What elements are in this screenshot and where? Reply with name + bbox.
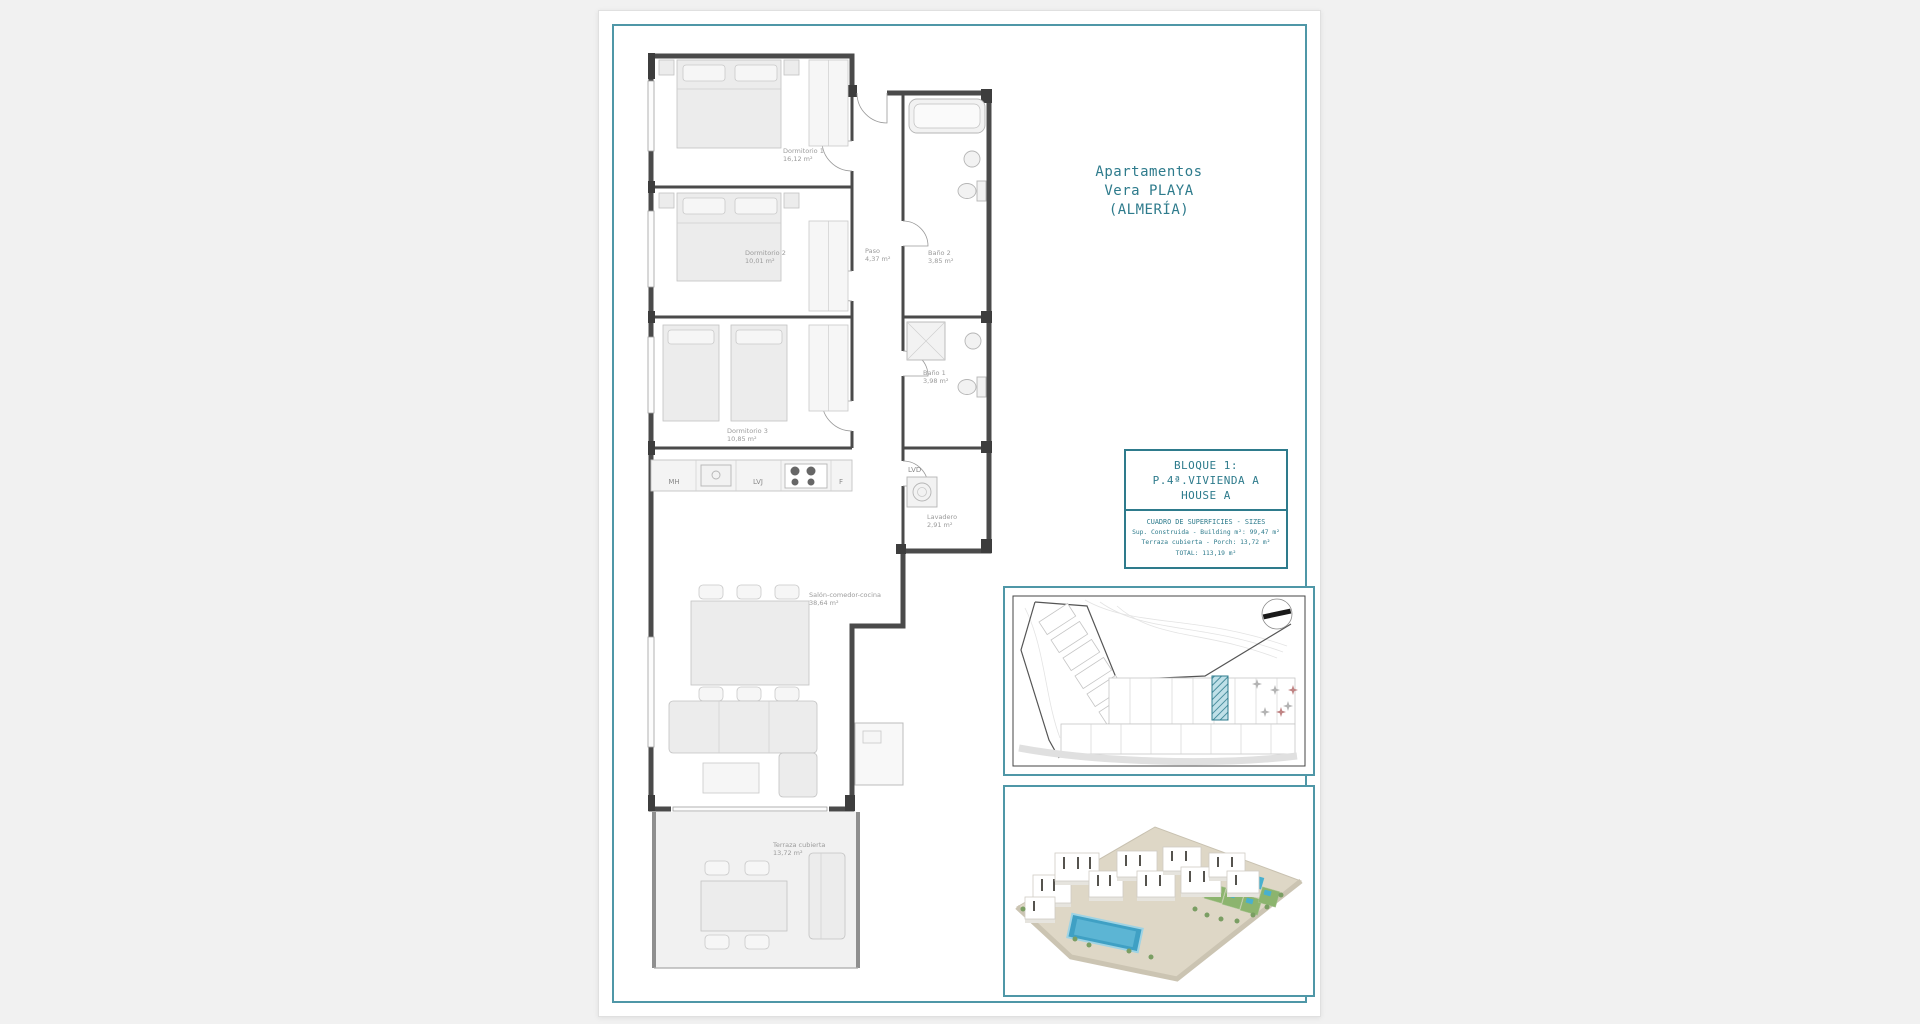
room-area-bano1: 3,98 m² (923, 377, 949, 385)
render-3d-inset (1003, 785, 1315, 997)
room-area-terraza: 13,72 m² (773, 849, 803, 857)
room-area-bano2: 3,85 m² (928, 257, 954, 265)
room-label-salon: Salón-comedor-cocina (809, 591, 881, 599)
site-plan-drawing (1005, 588, 1313, 774)
room-label-dormitorio1: Dormitorio 1 (783, 147, 824, 155)
site-plan-inset (1003, 586, 1315, 776)
floor-plan: Dormitorio 1 16,12 m² Dormitorio 2 10,01… (641, 41, 1011, 991)
room-area-dormitorio3: 10,85 m² (727, 435, 757, 443)
room-label-paso: Paso (865, 247, 880, 255)
room-area-dormitorio2: 10,01 m² (745, 257, 775, 265)
room-label-bano1: Baño 1 (923, 369, 946, 377)
room-label-lavadero: Lavadero (927, 513, 957, 521)
service-platform (855, 723, 903, 785)
room-label-dormitorio3: Dormitorio 3 (727, 427, 768, 435)
bedroom3-furniture (663, 325, 848, 421)
label-lvd: LVD (908, 466, 921, 474)
block-line-1: BLOQUE 1: (1128, 458, 1284, 473)
plan-sheet: Apartamentos Vera PLAYA (ALMERÍA) (598, 10, 1321, 1017)
room-area-lavadero: 2,91 m² (927, 521, 953, 529)
surfaces-table-title: CUADRO DE SUPERFICIES - SIZES (1128, 517, 1284, 528)
bathroom1-fixtures (907, 322, 986, 397)
north-arrow (1262, 599, 1292, 629)
terrace-sliding-door (671, 806, 829, 812)
sofa-set (669, 701, 817, 797)
room-area-dormitorio1: 16,12 m² (783, 155, 813, 163)
room-area-paso: 4,37 m² (865, 255, 891, 263)
project-title: Apartamentos Vera PLAYA (ALMERÍA) (1054, 163, 1244, 220)
surfaces-row-total: TOTAL: 113,19 m² (1128, 549, 1284, 560)
room-area-salon: 38,64 m² (809, 599, 839, 607)
kitchen-counter (651, 460, 852, 491)
label-lvj: LVJ (753, 478, 763, 486)
aerial-render (1005, 787, 1313, 995)
info-box: BLOQUE 1: P.4ª.VIVIENDA A HOUSE A CUADRO… (1124, 449, 1288, 569)
room-label-terraza: Terraza cubierta (772, 841, 825, 849)
highlighted-unit (1212, 676, 1228, 720)
bathroom2-fixtures (909, 99, 986, 201)
block-identifier: BLOQUE 1: P.4ª.VIVIENDA A HOUSE A (1126, 451, 1286, 511)
interior-doors (822, 141, 928, 486)
dining-set (691, 585, 809, 701)
surfaces-row-terrace: Terraza cubierta - Porch: 13,72 m² (1128, 538, 1284, 549)
surfaces-table: CUADRO DE SUPERFICIES - SIZES Sup. Const… (1126, 511, 1286, 567)
title-line-2: Vera PLAYA (1054, 182, 1244, 201)
room-label-bano2: Baño 2 (928, 249, 951, 257)
block-line-2: P.4ª.VIVIENDA A (1128, 473, 1284, 488)
label-f: F (839, 478, 843, 486)
room-label-dormitorio2: Dormitorio 2 (745, 249, 786, 257)
entry-door (857, 90, 887, 123)
title-line-1: Apartamentos (1054, 163, 1244, 182)
title-line-3: (ALMERÍA) (1054, 201, 1244, 220)
block-line-3: HOUSE A (1128, 488, 1284, 503)
bedroom1-furniture (659, 60, 848, 148)
label-mh: MH (668, 478, 679, 486)
washer (907, 477, 937, 507)
surfaces-row-built: Sup. Construida - Building m²: 99,47 m² (1128, 528, 1284, 539)
